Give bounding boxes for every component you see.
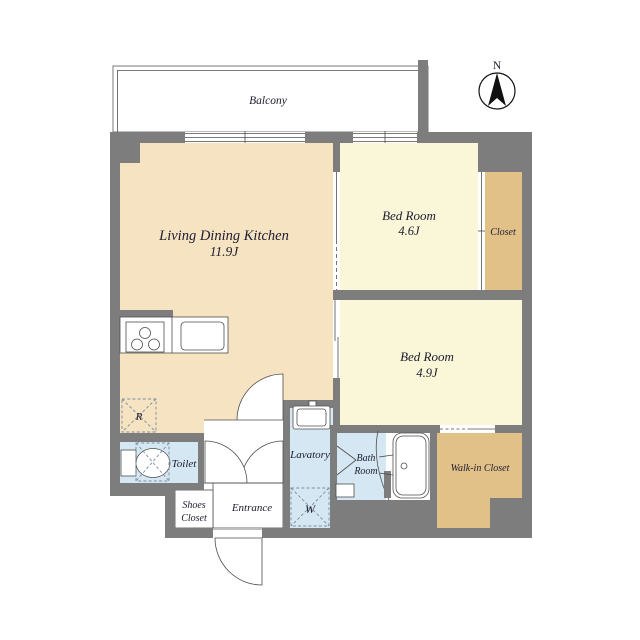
bedroom-b-label: Bed Room <box>400 349 454 364</box>
bedroom-a-label: Bed Room <box>382 208 436 223</box>
room-ldk-floor <box>120 143 333 433</box>
bathtub-icon <box>393 433 429 498</box>
bath-room-label-1: Bath <box>357 453 376 464</box>
shoes-closet-label-2: Closet <box>181 513 207 524</box>
refrigerator-label: R <box>135 411 143 423</box>
balcony-label: Balcony <box>249 95 288 107</box>
shoes-closet-label-1: Shoes <box>182 500 205 511</box>
kitchen-sink-icon <box>181 322 224 350</box>
north-label: N <box>493 60 502 72</box>
walk-in-closet-label: Walk-in Closet <box>451 463 510 474</box>
floor-plan-drawing: Balcony Living Dining Kitchen 11.9J Bed … <box>0 0 640 640</box>
kitchen-stove-icon <box>126 322 164 352</box>
ldk-size: 11.9J <box>210 244 240 259</box>
bedroom-b-size: 4.9J <box>416 366 439 380</box>
sliding-door-bedroom-a <box>333 172 340 290</box>
toilet-label: Toilet <box>172 458 198 470</box>
washer-label: W <box>305 502 316 516</box>
entrance-door-arc <box>215 538 262 585</box>
lavatory-label: Lavatory <box>289 449 330 461</box>
ldk-label: Living Dining Kitchen <box>158 228 289 244</box>
window-ldk <box>185 131 305 143</box>
entrance-label: Entrance <box>231 502 272 514</box>
closet-label: Closet <box>490 227 516 238</box>
north-compass-icon: N <box>479 60 515 109</box>
sliding-door-walk-in-closet <box>440 425 495 433</box>
sliding-door-bedroom-b <box>333 300 340 378</box>
bedroom-a-size: 4.6J <box>398 224 421 238</box>
sliding-door-closet <box>478 172 485 290</box>
window-bedroom-a <box>353 131 417 143</box>
floor-plan: Balcony Living Dining Kitchen 11.9J Bed … <box>0 0 640 640</box>
kitchen-counter <box>120 317 228 353</box>
entrance-door-opening <box>213 528 262 538</box>
bath-room-label-2: Room <box>353 466 377 477</box>
